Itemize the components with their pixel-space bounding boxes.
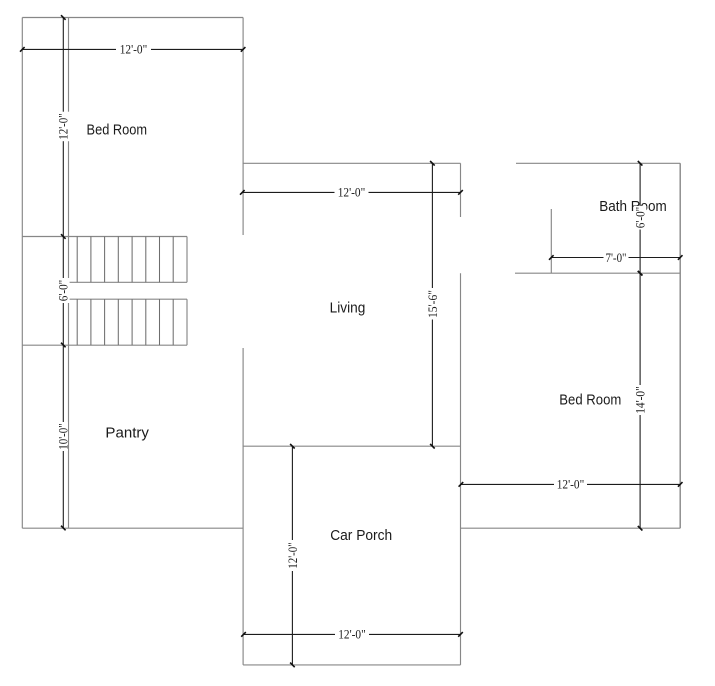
svg-text:6'-0": 6'-0" bbox=[56, 280, 71, 302]
svg-text:12'-0": 12'-0" bbox=[338, 627, 366, 642]
svg-text:12'-0": 12'-0" bbox=[557, 477, 585, 492]
svg-text:7'-0": 7'-0" bbox=[606, 250, 627, 265]
svg-text:Car Porch: Car Porch bbox=[330, 527, 392, 544]
svg-text:Living: Living bbox=[330, 299, 366, 316]
svg-text:6'-0": 6'-0" bbox=[633, 207, 648, 229]
svg-text:15'-6": 15'-6" bbox=[425, 290, 440, 318]
svg-text:10'-0": 10'-0" bbox=[56, 423, 71, 450]
svg-text:14'-0": 14'-0" bbox=[633, 386, 648, 414]
svg-text:12'-0": 12'-0" bbox=[285, 542, 300, 569]
svg-text:12'-0": 12'-0" bbox=[56, 113, 71, 140]
svg-text:12'-0": 12'-0" bbox=[338, 185, 366, 200]
svg-text:12'-0": 12'-0" bbox=[120, 41, 148, 56]
svg-text:Bed Room: Bed Room bbox=[559, 391, 621, 408]
svg-text:Pantry: Pantry bbox=[105, 425, 149, 442]
svg-text:Bed Room: Bed Room bbox=[87, 122, 148, 139]
